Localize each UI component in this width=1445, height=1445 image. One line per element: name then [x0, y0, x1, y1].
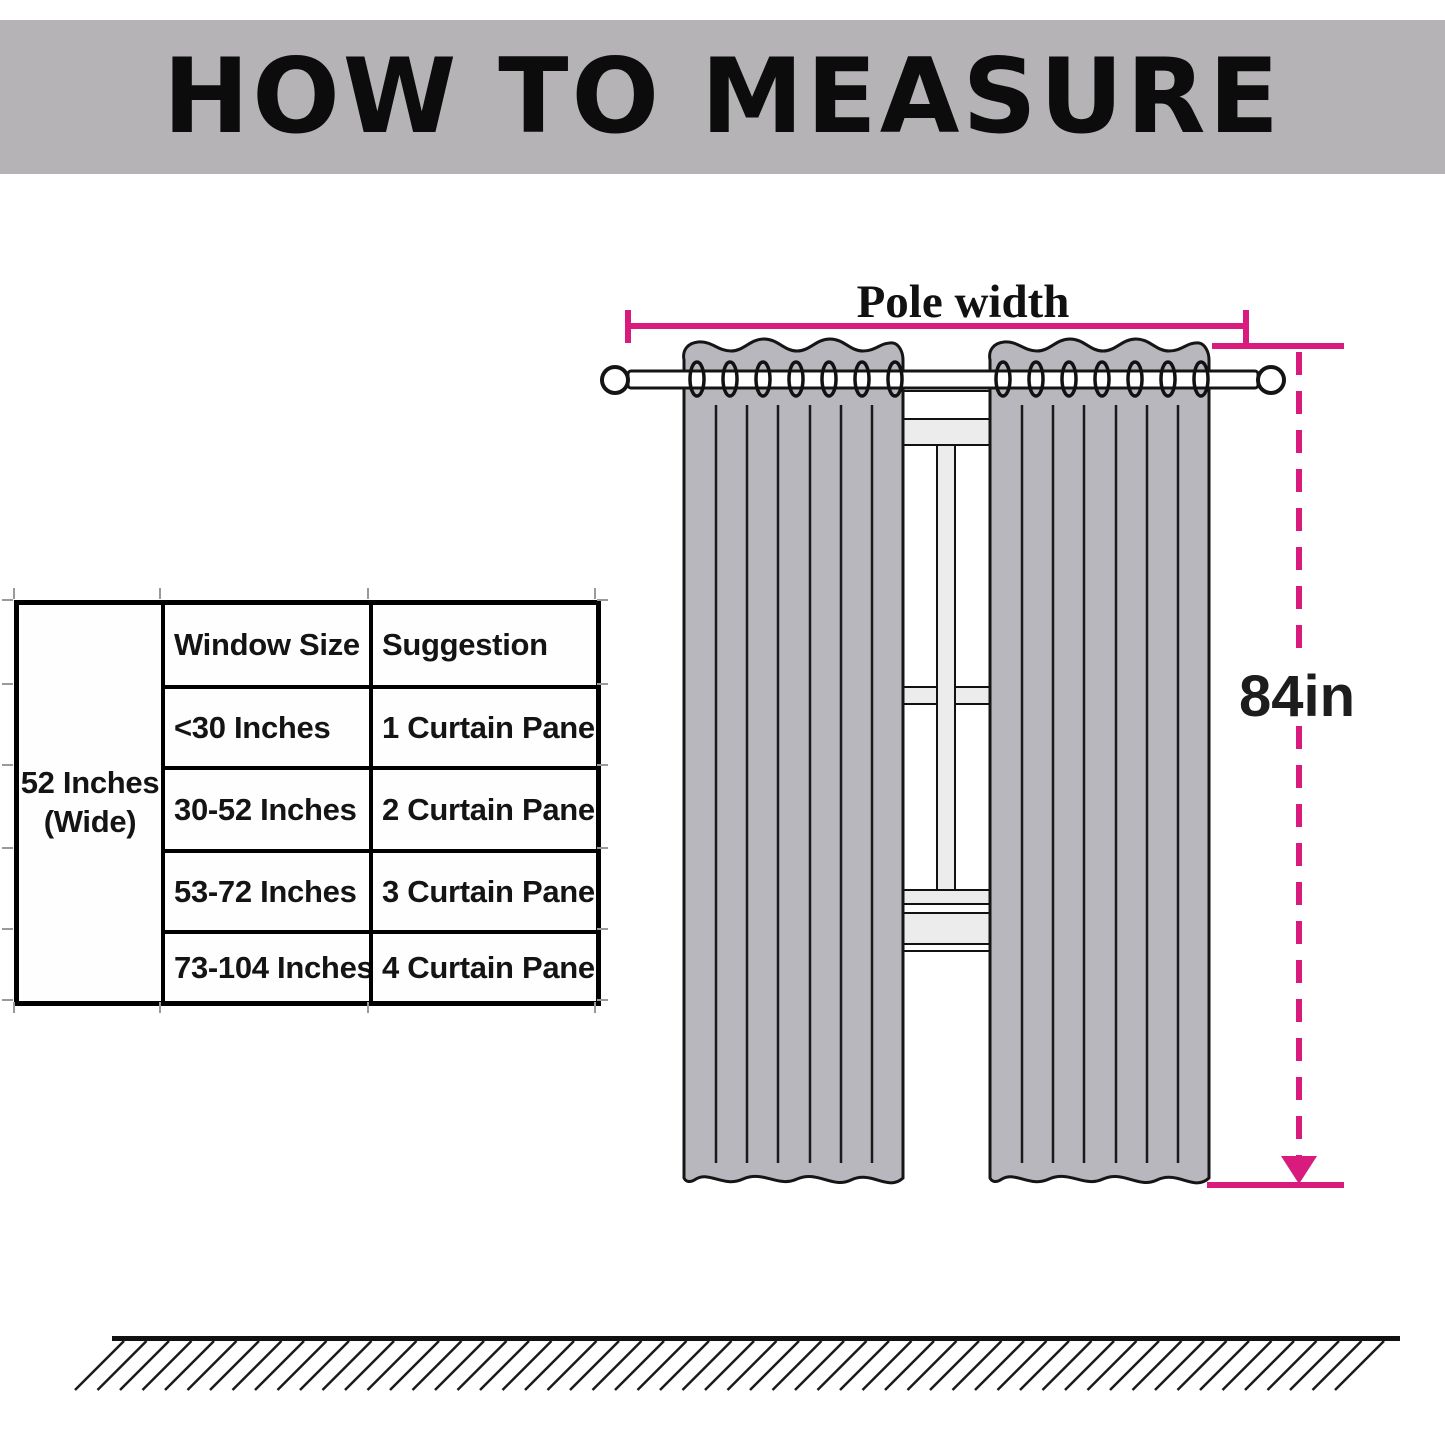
hatch-stroke: [930, 1341, 979, 1390]
table-cell-window-size: 73-104 Inches: [163, 932, 371, 1003]
grid-tick: [597, 999, 608, 1001]
grid-tick: [159, 588, 161, 599]
hatch-stroke: [188, 1341, 237, 1390]
hatch-stroke: [1155, 1341, 1204, 1390]
hatch-stroke: [728, 1341, 777, 1390]
height-arrowhead: [1281, 1156, 1317, 1184]
window-sill-edge: [902, 944, 990, 951]
table-header-suggestion: Suggestion: [371, 603, 598, 687]
grid-tick: [597, 764, 608, 766]
hatch-stroke: [503, 1341, 552, 1390]
grid-tick: [594, 588, 596, 599]
pole-width-measure: Pole width: [625, 276, 1249, 343]
hatch-stroke: [1335, 1341, 1384, 1390]
side-label-line1: 52 Inches: [21, 764, 160, 803]
hatch-stroke: [255, 1341, 304, 1390]
table-cell-window-size: <30 Inches: [163, 687, 371, 768]
grid-tick: [367, 588, 369, 599]
hatch-stroke: [818, 1341, 867, 1390]
grid-tick: [2, 928, 13, 930]
rod-finial-left: [602, 367, 628, 393]
hatch-stroke: [908, 1341, 957, 1390]
hatch-stroke: [1133, 1341, 1182, 1390]
height-measure: 84in: [1207, 343, 1355, 1188]
hatch-stroke: [615, 1341, 664, 1390]
hatch-stroke: [593, 1341, 642, 1390]
grid-tick: [13, 588, 15, 599]
grid-tick: [2, 847, 13, 849]
window-mid-rail-right: [955, 687, 990, 704]
pole-width-tick-left: [625, 310, 631, 343]
floor-line: [112, 1336, 1400, 1341]
hatch-stroke: [1268, 1341, 1317, 1390]
rod-finial-right: [1258, 367, 1284, 393]
table-cell-window-size: 30-52 Inches: [163, 768, 371, 851]
window-bottom-rail: [902, 890, 990, 904]
hatch-stroke: [1020, 1341, 1069, 1390]
window-mid-rail-left: [902, 687, 937, 704]
window-sill: [902, 913, 990, 944]
height-label: 84in: [1239, 664, 1355, 729]
hatch-stroke: [278, 1341, 327, 1390]
hatch-stroke: [98, 1341, 147, 1390]
window-top-frame: [902, 391, 990, 419]
hatch-stroke: [683, 1341, 732, 1390]
hatch-stroke: [1313, 1341, 1362, 1390]
hatch-stroke: [368, 1341, 417, 1390]
grid-tick: [597, 847, 608, 849]
table-side-label: 52 Inches (Wide): [17, 603, 163, 1003]
hatch-stroke: [548, 1341, 597, 1390]
infographic-page: HOW TO MEASURE Pole width: [0, 0, 1445, 1445]
hatch-stroke: [165, 1341, 214, 1390]
grid-tick: [367, 1002, 369, 1013]
grid-tick: [13, 1002, 15, 1013]
table-cell-window-size: 53-72 Inches: [163, 851, 371, 932]
hatch-stroke: [1043, 1341, 1092, 1390]
height-ref-line-top: [1212, 343, 1344, 349]
floor-hatching: [75, 1341, 1384, 1390]
grid-tick: [2, 764, 13, 766]
hatch-stroke: [773, 1341, 822, 1390]
hatch-stroke: [525, 1341, 574, 1390]
pole-width-label: Pole width: [857, 276, 1070, 328]
table-cell-suggestion: 4 Curtain Panel: [371, 932, 598, 1003]
table-cell-suggestion: 1 Curtain Panel: [371, 687, 598, 768]
window-mullion: [937, 445, 955, 890]
hatch-stroke: [975, 1341, 1024, 1390]
hatch-stroke: [750, 1341, 799, 1390]
hatch-stroke: [75, 1341, 124, 1390]
hatch-stroke: [795, 1341, 844, 1390]
grid-tick: [594, 1002, 596, 1013]
hatch-stroke: [953, 1341, 1002, 1390]
hatch-stroke: [1088, 1341, 1137, 1390]
grid-tick: [159, 1002, 161, 1013]
hatch-stroke: [143, 1341, 192, 1390]
hatch-stroke: [413, 1341, 462, 1390]
hatch-stroke: [1110, 1341, 1159, 1390]
table-cell-suggestion: 2 Curtain Panel: [371, 768, 598, 851]
hatch-stroke: [705, 1341, 754, 1390]
hatch-stroke: [210, 1341, 259, 1390]
hatch-stroke: [1200, 1341, 1249, 1390]
hatch-stroke: [300, 1341, 349, 1390]
size-table: 52 Inches (Wide) Window Size Suggestion …: [14, 600, 601, 1006]
window-header-rail: [902, 419, 990, 445]
hatch-stroke: [323, 1341, 372, 1390]
grid-tick: [2, 999, 13, 1001]
hatch-stroke: [1178, 1341, 1227, 1390]
hatch-stroke: [1223, 1341, 1272, 1390]
window-frame: [902, 391, 990, 951]
hatch-stroke: [885, 1341, 934, 1390]
window-sill-gap: [902, 904, 990, 913]
floor: [75, 1336, 1400, 1390]
pole-width-line: [628, 323, 1246, 329]
grid-tick: [597, 599, 608, 601]
hatch-stroke: [660, 1341, 709, 1390]
hatch-stroke: [233, 1341, 282, 1390]
hatch-stroke: [1290, 1341, 1339, 1390]
hatch-stroke: [480, 1341, 529, 1390]
hatch-stroke: [638, 1341, 687, 1390]
hatch-stroke: [345, 1341, 394, 1390]
height-ref-line-bottom: [1207, 1182, 1344, 1188]
hatch-stroke: [390, 1341, 439, 1390]
table-header-window-size: Window Size: [163, 603, 371, 687]
hatch-stroke: [120, 1341, 169, 1390]
grid-tick: [597, 683, 608, 685]
hatch-stroke: [458, 1341, 507, 1390]
hatch-stroke: [570, 1341, 619, 1390]
side-label-line2: (Wide): [44, 803, 137, 842]
grid-tick: [2, 599, 13, 601]
grid-tick: [597, 928, 608, 930]
hatch-stroke: [863, 1341, 912, 1390]
hatch-stroke: [998, 1341, 1047, 1390]
pole-width-tick-right: [1243, 310, 1249, 343]
hatch-stroke: [1245, 1341, 1294, 1390]
table-cell-suggestion: 3 Curtain Panel: [371, 851, 598, 932]
hatch-stroke: [435, 1341, 484, 1390]
grid-tick: [2, 683, 13, 685]
hatch-stroke: [840, 1341, 889, 1390]
hatch-stroke: [1065, 1341, 1114, 1390]
